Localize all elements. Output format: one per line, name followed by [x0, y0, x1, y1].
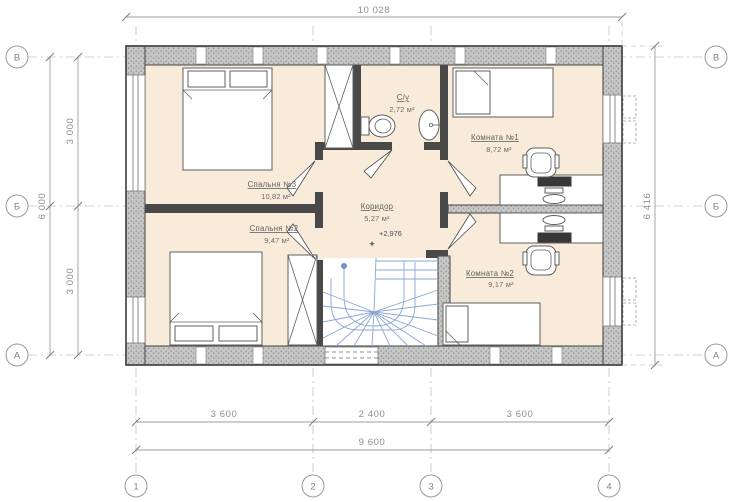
window-room1 — [603, 95, 636, 143]
bed-single-room1 — [453, 68, 553, 117]
dim-bottom-segment-2: 2 400 — [359, 409, 386, 420]
bed-double-bedroom3 — [183, 68, 272, 170]
dim-left-segment-1: 3 000 — [65, 118, 76, 145]
dimension-top: 10 028 — [122, 5, 626, 46]
monitor-room1 — [538, 177, 571, 186]
window-room2 — [603, 277, 636, 326]
chair-room2 — [523, 246, 559, 275]
grid-row-A-right: А — [713, 351, 720, 362]
grid-row-B-right: В — [713, 53, 719, 64]
room-name-bathroom: С/у — [397, 93, 409, 102]
room-area-room1: 8,72 м² — [486, 145, 512, 154]
desk-room2 — [500, 213, 603, 243]
toilet — [361, 115, 395, 137]
room-name-corridor: Коридор — [361, 202, 394, 211]
grid-row-Bb-left: Б — [14, 202, 20, 213]
dim-bottom-total: 9 600 — [359, 437, 386, 448]
wall-bedrooms-divider — [145, 204, 323, 213]
wardrobe-bedroom2 — [288, 255, 317, 345]
room-area-bathroom: 2,72 м² — [389, 105, 415, 114]
stairs-start-dot — [341, 263, 347, 269]
dim-bottom-segment-3: 3 600 — [507, 409, 534, 420]
dim-bottom-segment-1: 3 600 — [211, 409, 238, 420]
window-bedroom2 — [126, 297, 145, 343]
dim-left-total: 6 000 — [37, 193, 48, 220]
elevation-mark-icon: ✦ — [368, 239, 376, 249]
room-name-bedroom2: Спальня №2 — [250, 224, 299, 233]
room-area-corridor: 5,27 м² — [364, 214, 390, 223]
desk-room1 — [500, 175, 603, 205]
monitor-room2 — [538, 233, 571, 242]
grid-col-1: 1 — [133, 482, 138, 493]
window-bedroom3 — [126, 75, 145, 191]
grid-row-Bb-right: Б — [713, 202, 719, 213]
dim-left-segment-2: 3 000 — [65, 268, 76, 295]
chair-room1 — [523, 148, 559, 177]
dim-right-total: 6 416 — [642, 193, 653, 220]
room-area-bedroom3: 10,82 м² — [261, 192, 291, 201]
window-stairwell — [325, 347, 378, 364]
grid-col-4: 4 — [606, 482, 611, 493]
wall-rooms-divider — [448, 205, 603, 213]
shaft — [325, 65, 353, 148]
grid-col-3: 3 — [428, 482, 433, 493]
room-area-room2: 9,17 м² — [488, 280, 514, 289]
dimension-left: 6 000 3 000 3 000 — [37, 53, 82, 359]
bed-double-bedroom2 — [170, 252, 262, 345]
grid-row-A-left: А — [14, 351, 21, 362]
grid-row-B-left: В — [14, 53, 20, 64]
room-name-bedroom3: Спальня №3 — [248, 180, 297, 189]
grid-col-2: 2 — [310, 482, 315, 493]
dim-top-total: 10 028 — [358, 5, 391, 16]
bed-single-room2 — [443, 303, 540, 345]
room-name-room1: Комната №1 — [471, 133, 519, 142]
floor-plan-drawing: Спальня №3 10,82 м² Спальня №2 9,47 м² С… — [0, 0, 742, 502]
stairwell-floor — [323, 258, 438, 346]
room-name-room2: Комната №2 — [466, 269, 514, 278]
floor-plan-sheet: Спальня №3 10,82 м² Спальня №2 9,47 м² С… — [0, 0, 742, 502]
room-area-bedroom2: 9,47 м² — [264, 236, 290, 245]
elevation-mark-value: +2,976 — [379, 229, 402, 238]
dimension-bottom: 3 600 2 400 3 600 9 600 — [132, 409, 613, 454]
